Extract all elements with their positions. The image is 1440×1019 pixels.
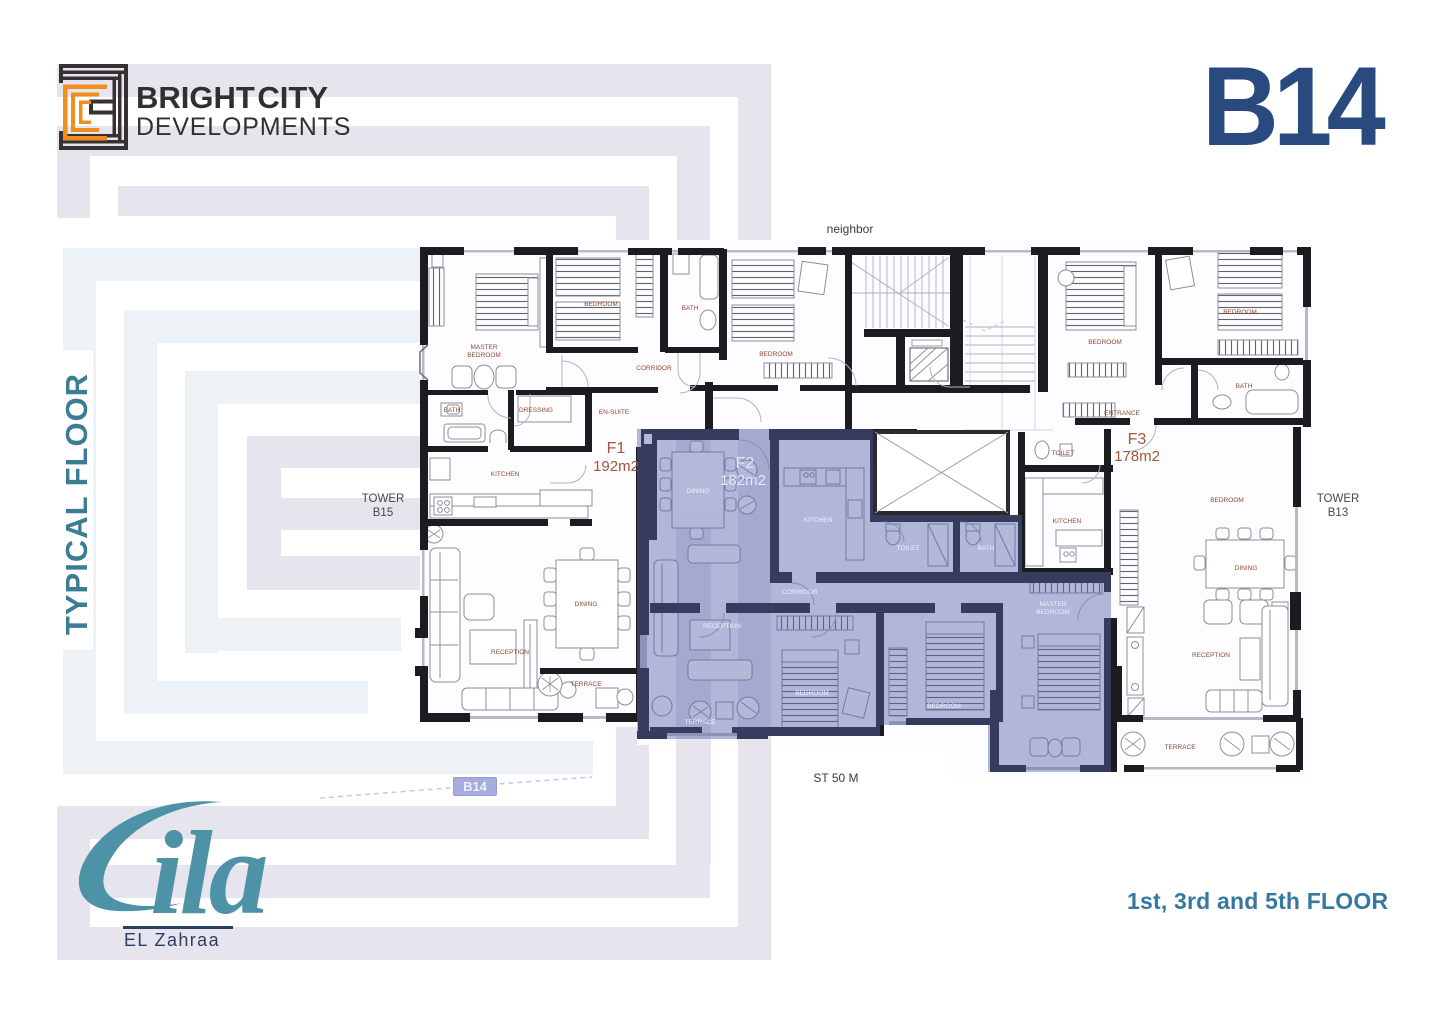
svg-text:BATH: BATH bbox=[682, 305, 699, 312]
svg-text:TOILET: TOILET bbox=[897, 545, 920, 552]
svg-text:TERRACE: TERRACE bbox=[1164, 744, 1196, 751]
svg-text:ST 50 M: ST 50 M bbox=[813, 771, 858, 785]
svg-text:BATH: BATH bbox=[1236, 383, 1253, 390]
svg-text:KITCHEN: KITCHEN bbox=[804, 517, 833, 524]
svg-text:RECEPTION: RECEPTION bbox=[1192, 652, 1230, 659]
svg-text:neighbor: neighbor bbox=[827, 222, 874, 236]
svg-text:BEDROOM: BEDROOM bbox=[759, 351, 793, 358]
svg-text:MASTER: MASTER bbox=[1039, 601, 1066, 608]
svg-text:BEDROOM: BEDROOM bbox=[467, 352, 501, 359]
svg-text:BEDROOM: BEDROOM bbox=[795, 690, 829, 697]
svg-text:KITCHEN: KITCHEN bbox=[1053, 518, 1082, 525]
svg-text:F2: F2 bbox=[736, 455, 755, 472]
svg-text:182m2: 182m2 bbox=[720, 472, 766, 489]
svg-text:DINING: DINING bbox=[575, 601, 598, 608]
svg-text:TERRACE: TERRACE bbox=[570, 681, 602, 688]
svg-text:TOILET: TOILET bbox=[1052, 450, 1075, 457]
svg-text:BEDROOM: BEDROOM bbox=[1223, 309, 1257, 316]
svg-text:TOWER: TOWER bbox=[1317, 493, 1360, 505]
svg-text:ila: ila bbox=[150, 806, 267, 930]
svg-text:DRESSING: DRESSING bbox=[519, 407, 553, 414]
svg-text:BATH: BATH bbox=[978, 545, 995, 552]
svg-text:KITCHEN: KITCHEN bbox=[491, 471, 520, 478]
svg-text:RECEPTION: RECEPTION bbox=[491, 649, 529, 656]
svg-text:TOWER: TOWER bbox=[362, 493, 405, 505]
svg-text:B15: B15 bbox=[373, 507, 393, 519]
svg-text:DINING: DINING bbox=[687, 488, 710, 495]
svg-text:RECEPTION: RECEPTION bbox=[703, 623, 741, 630]
svg-text:F1: F1 bbox=[607, 440, 626, 457]
svg-text:TERRACE: TERRACE bbox=[684, 719, 716, 726]
svg-text:B13: B13 bbox=[1328, 507, 1348, 519]
svg-text:BEDROOM: BEDROOM bbox=[1088, 339, 1122, 346]
svg-text:BEDROOM: BEDROOM bbox=[1036, 609, 1070, 616]
svg-text:MASTER: MASTER bbox=[470, 344, 497, 351]
svg-text:BEDROOM: BEDROOM bbox=[584, 301, 618, 308]
svg-text:DINING: DINING bbox=[1235, 565, 1258, 572]
svg-text:CORRIDOR: CORRIDOR bbox=[636, 365, 672, 372]
svg-text:178m2: 178m2 bbox=[1114, 448, 1160, 465]
svg-text:BEDROOM: BEDROOM bbox=[927, 703, 961, 710]
svg-text:BEDROOM: BEDROOM bbox=[1210, 497, 1244, 504]
svg-text:EN-SUITE: EN-SUITE bbox=[599, 409, 630, 416]
svg-text:CORRIDOR: CORRIDOR bbox=[782, 589, 818, 596]
svg-text:ENTRANCE: ENTRANCE bbox=[1104, 410, 1140, 417]
svg-text:192m2: 192m2 bbox=[593, 458, 639, 475]
svg-text:F3: F3 bbox=[1128, 431, 1147, 448]
svg-text:BATH: BATH bbox=[444, 407, 461, 414]
